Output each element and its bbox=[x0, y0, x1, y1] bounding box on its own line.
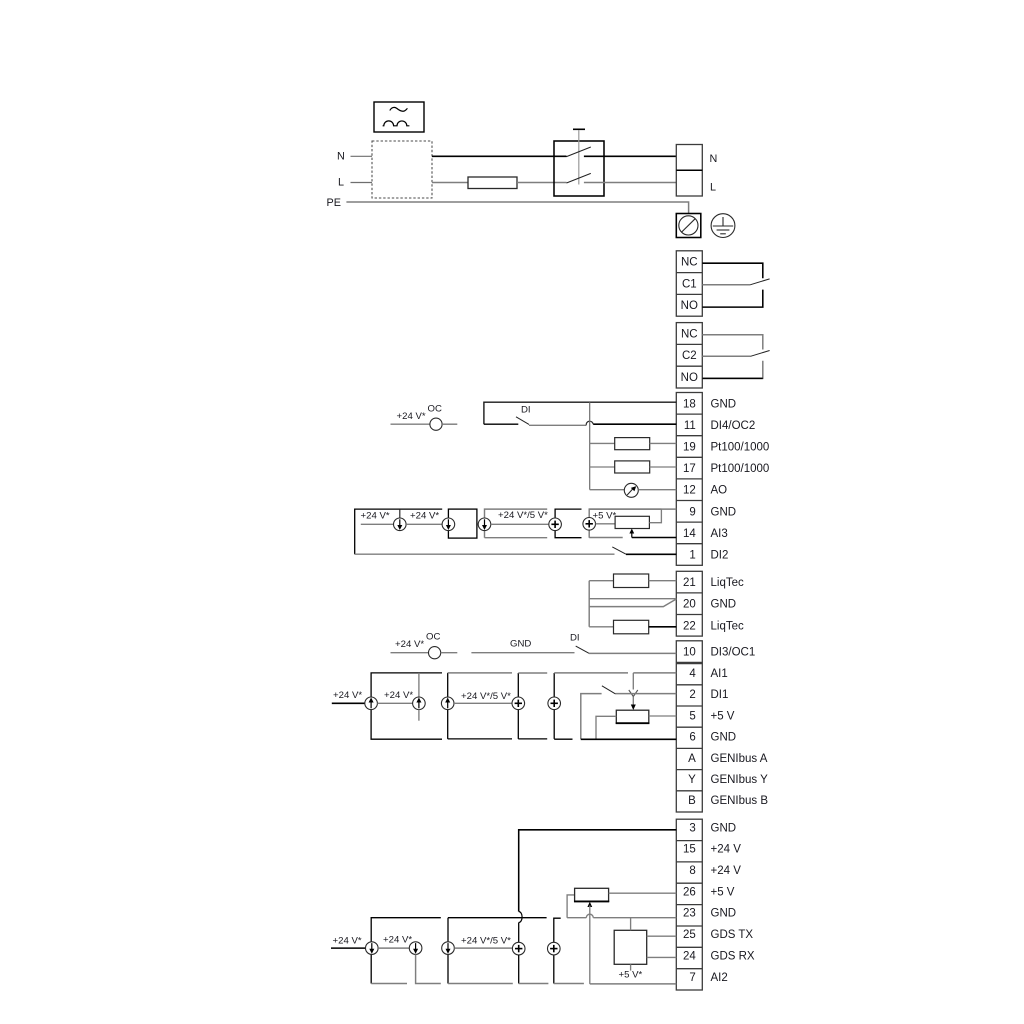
svg-text:OC: OC bbox=[426, 632, 440, 643]
svg-text:+5 V*: +5 V* bbox=[593, 511, 617, 522]
svg-text:15: 15 bbox=[683, 844, 696, 856]
svg-text:A: A bbox=[688, 753, 696, 765]
svg-text:Pt100/1000: Pt100/1000 bbox=[711, 463, 770, 475]
svg-text:8: 8 bbox=[689, 865, 695, 877]
svg-text:12: 12 bbox=[683, 485, 696, 497]
svg-text:18: 18 bbox=[683, 398, 696, 410]
svg-text:GND: GND bbox=[711, 599, 737, 611]
svg-text:GDS RX: GDS RX bbox=[711, 950, 755, 962]
svg-text:LiqTec: LiqTec bbox=[711, 620, 744, 632]
svg-text:3: 3 bbox=[689, 822, 695, 834]
svg-text:GND: GND bbox=[711, 398, 737, 410]
svg-text:GENIbus Y: GENIbus Y bbox=[711, 774, 769, 786]
svg-text:AI1: AI1 bbox=[711, 668, 728, 680]
svg-text:21: 21 bbox=[683, 577, 696, 589]
svg-text:N: N bbox=[337, 151, 345, 163]
svg-text:+24 V*/5 V*: +24 V*/5 V* bbox=[498, 510, 548, 521]
svg-text:AI2: AI2 bbox=[711, 972, 728, 984]
svg-text:24: 24 bbox=[683, 950, 696, 962]
svg-text:+24 V*: +24 V* bbox=[395, 639, 424, 650]
svg-text:GENIbus B: GENIbus B bbox=[711, 795, 769, 807]
svg-text:GND: GND bbox=[711, 908, 737, 920]
svg-text:+24 V*: +24 V* bbox=[333, 935, 362, 946]
svg-text:2: 2 bbox=[689, 689, 695, 701]
svg-text:19: 19 bbox=[683, 442, 696, 454]
svg-text:23: 23 bbox=[683, 908, 696, 920]
svg-text:NC: NC bbox=[681, 328, 698, 340]
svg-text:+24 V*: +24 V* bbox=[384, 690, 413, 701]
svg-text:11: 11 bbox=[684, 420, 696, 432]
svg-text:+24 V*: +24 V* bbox=[397, 411, 426, 422]
svg-text:Y: Y bbox=[688, 774, 696, 786]
svg-text:C1: C1 bbox=[682, 278, 697, 290]
svg-text:4: 4 bbox=[689, 668, 696, 680]
svg-text:GND: GND bbox=[711, 732, 737, 744]
svg-text:22: 22 bbox=[683, 620, 696, 632]
svg-text:N: N bbox=[710, 153, 718, 165]
svg-text:L: L bbox=[338, 177, 344, 189]
svg-text:+24 V*: +24 V* bbox=[361, 511, 390, 522]
svg-text:C2: C2 bbox=[682, 350, 697, 362]
svg-text:DI1: DI1 bbox=[711, 689, 729, 701]
svg-text:+24 V*: +24 V* bbox=[383, 935, 412, 946]
svg-text:DI4/OC2: DI4/OC2 bbox=[711, 420, 756, 432]
svg-text:GENIbus A: GENIbus A bbox=[711, 753, 768, 765]
svg-text:AI3: AI3 bbox=[711, 528, 728, 540]
svg-text:GND: GND bbox=[711, 506, 737, 518]
svg-text:NC: NC bbox=[681, 257, 698, 269]
svg-text:AO: AO bbox=[711, 485, 728, 497]
svg-text:6: 6 bbox=[689, 732, 695, 744]
svg-text:1: 1 bbox=[689, 550, 695, 562]
svg-text:+24 V*: +24 V* bbox=[333, 690, 362, 701]
svg-text:5: 5 bbox=[689, 710, 695, 722]
svg-text:Pt100/1000: Pt100/1000 bbox=[711, 442, 770, 454]
svg-text:+5 V: +5 V bbox=[711, 710, 735, 722]
svg-text:NO: NO bbox=[681, 372, 698, 384]
svg-text:17: 17 bbox=[683, 463, 696, 475]
svg-text:DI: DI bbox=[521, 405, 531, 416]
svg-text:+24 V: +24 V bbox=[711, 844, 742, 856]
svg-text:+5 V: +5 V bbox=[711, 886, 735, 898]
svg-text:NO: NO bbox=[681, 300, 698, 312]
svg-text:GND: GND bbox=[510, 639, 531, 650]
svg-text:10: 10 bbox=[683, 647, 696, 659]
svg-text:9: 9 bbox=[689, 506, 695, 518]
svg-text:14: 14 bbox=[683, 528, 696, 540]
svg-text:7: 7 bbox=[689, 972, 695, 984]
svg-text:+24 V*/5 V*: +24 V*/5 V* bbox=[461, 936, 511, 947]
svg-text:DI2: DI2 bbox=[711, 550, 729, 562]
svg-text:B: B bbox=[688, 795, 696, 807]
svg-text:OC: OC bbox=[428, 404, 442, 415]
svg-text:20: 20 bbox=[683, 599, 696, 611]
svg-text:GDS TX: GDS TX bbox=[711, 929, 754, 941]
svg-text:GND: GND bbox=[711, 822, 737, 834]
svg-text:25: 25 bbox=[683, 929, 696, 941]
svg-text:26: 26 bbox=[683, 886, 696, 898]
svg-text:+24 V*/5 V*: +24 V*/5 V* bbox=[461, 691, 511, 702]
svg-text:DI3/OC1: DI3/OC1 bbox=[711, 647, 756, 659]
svg-text:+24 V: +24 V bbox=[711, 865, 742, 877]
svg-text:LiqTec: LiqTec bbox=[711, 577, 744, 589]
svg-text:L: L bbox=[710, 182, 716, 194]
svg-text:PE: PE bbox=[327, 197, 341, 209]
svg-text:+5 V*: +5 V* bbox=[619, 970, 643, 981]
svg-text:+24 V*: +24 V* bbox=[410, 511, 439, 522]
svg-text:DI: DI bbox=[570, 633, 580, 644]
